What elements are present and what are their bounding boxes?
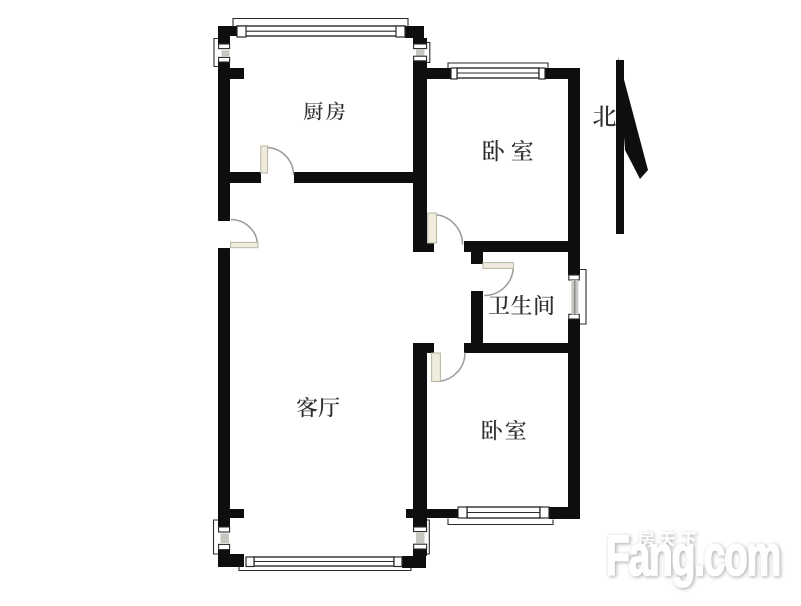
svg-text:Fang.com: Fang.com [606, 524, 780, 588]
